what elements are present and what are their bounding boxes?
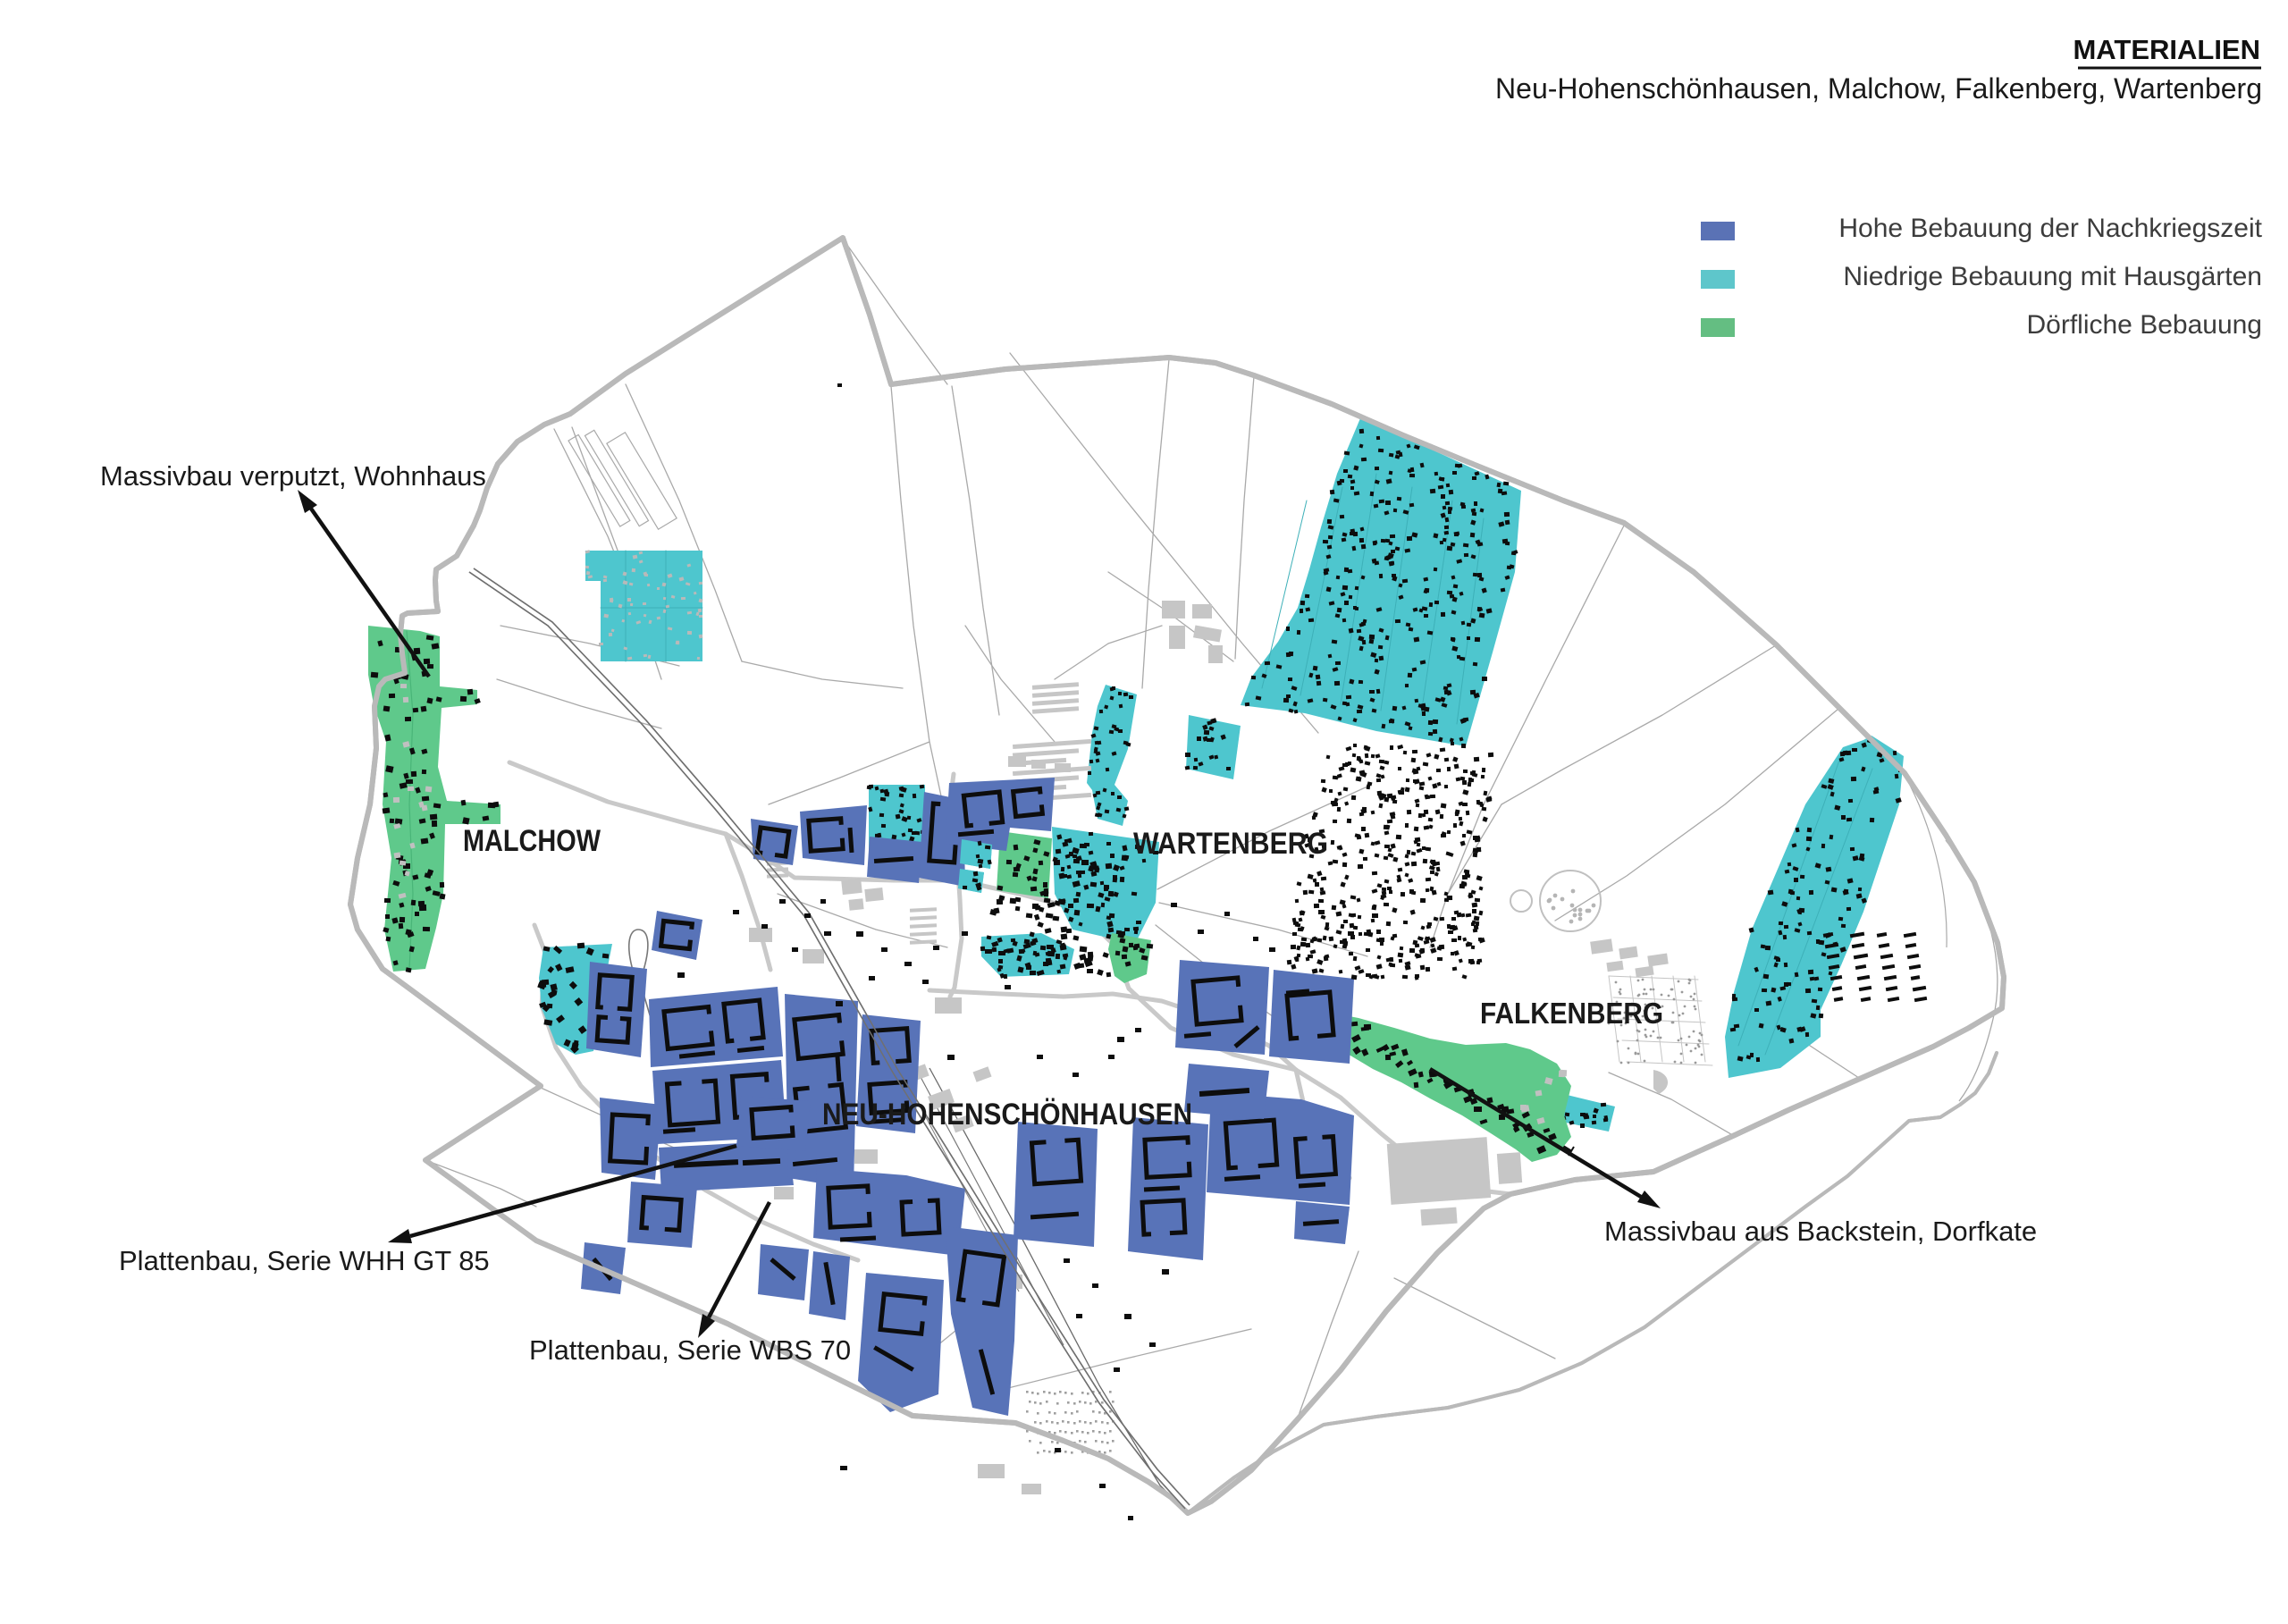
svg-text:Plattenbau, Serie WHH GT 85: Plattenbau, Serie WHH GT 85 (119, 1245, 490, 1276)
svg-text:WARTENBERG: WARTENBERG (1133, 827, 1328, 861)
svg-text:Hohe Bebauung der Nachkriegsze: Hohe Bebauung der Nachkriegszeit (1838, 214, 2262, 243)
svg-text:MALCHOW: MALCHOW (463, 824, 601, 858)
svg-text:Massivbau verputzt, Wohnhaus: Massivbau verputzt, Wohnhaus (100, 460, 486, 492)
svg-text:FALKENBERG: FALKENBERG (1480, 997, 1663, 1030)
svg-text:Neu-Hohenschönhausen, Malchow,: Neu-Hohenschönhausen, Malchow, Falkenber… (1495, 72, 2262, 105)
svg-text:Dörfliche Bebauung: Dörfliche Bebauung (2026, 310, 2262, 340)
svg-text:Massivbau aus Backstein, Dorfk: Massivbau aus Backstein, Dorfkate (1604, 1216, 2037, 1247)
svg-text:Niedrige Bebauung mit Hausgärt: Niedrige Bebauung mit Hausgärten (1843, 262, 2262, 291)
svg-text:Plattenbau, Serie WBS 70: Plattenbau, Serie WBS 70 (529, 1334, 851, 1366)
svg-text:NEU-HOHENSCHÖNHAUSEN: NEU-HOHENSCHÖNHAUSEN (822, 1098, 1192, 1132)
svg-text:MATERIALIEN: MATERIALIEN (2073, 34, 2260, 65)
